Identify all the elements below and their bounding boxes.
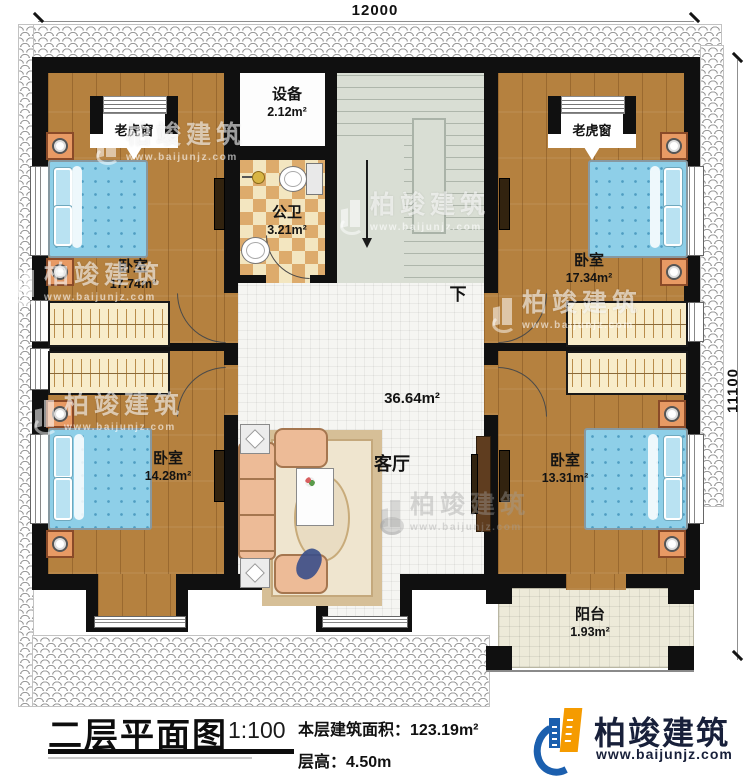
nightstand	[46, 132, 74, 160]
room-label-bathroom: 公卫 3.21m²	[233, 204, 341, 238]
floor-height-value: 4.50m	[346, 754, 391, 771]
left-bay-floor	[98, 574, 176, 618]
bed-sheet	[650, 166, 660, 248]
closet	[566, 351, 688, 395]
brand-logo-icon	[534, 706, 588, 768]
balcony-pillar	[486, 578, 512, 604]
dormer-label: 老虎窗	[90, 120, 178, 139]
room-label-bedroom-tl: 卧室 17.74m²	[73, 258, 193, 292]
balcony-pillar	[668, 578, 694, 604]
room-name: 公卫	[233, 204, 341, 223]
nightstand	[46, 400, 74, 428]
room-area: 14.28m²	[108, 469, 228, 485]
door-opening	[224, 293, 238, 343]
coffee-table	[296, 468, 334, 526]
balcony-pillar	[486, 646, 512, 672]
window	[30, 300, 50, 342]
room-label-bedroom-tr: 卧室 17.34m²	[529, 252, 649, 286]
door-opening	[484, 293, 498, 343]
floor-height-label: 层高：	[298, 754, 346, 771]
pillow	[664, 206, 682, 246]
balcony-door-opening	[566, 574, 626, 590]
closet	[48, 351, 170, 395]
nightstand	[658, 530, 686, 558]
stair-landing-rail	[412, 118, 446, 234]
window	[30, 348, 50, 390]
nightstand	[660, 132, 688, 160]
room-area: 13.31m²	[505, 471, 625, 487]
top-dimension-value: 12000	[335, 2, 415, 19]
room-area: 17.34m²	[529, 271, 649, 287]
pillow	[54, 436, 72, 478]
window	[30, 434, 50, 524]
dormer-window-icon	[561, 96, 625, 114]
toilet-icon	[279, 166, 307, 192]
nightstand	[46, 530, 74, 558]
room-area: 17.74m²	[73, 277, 193, 293]
stairs-down-label: 下	[444, 280, 472, 305]
side-table	[240, 558, 270, 588]
stair-treads	[337, 75, 484, 145]
room-label-equipment: 设备 2.12m²	[233, 86, 341, 120]
room-label-bedroom-bl: 卧室 14.28m²	[108, 450, 228, 484]
closet	[566, 301, 688, 347]
living-room-area: 36.64m²	[362, 390, 462, 407]
pillow	[664, 168, 682, 208]
room-name: 卧室	[108, 450, 228, 469]
dormer-window-icon	[103, 96, 167, 114]
armchair-symbol	[274, 428, 328, 468]
title-underline	[48, 749, 294, 754]
sofa-symbol	[238, 442, 276, 560]
room-name: 卧室	[505, 452, 625, 471]
sink-icon	[241, 237, 270, 264]
room-label-bedroom-br: 卧室 13.31m²	[505, 452, 625, 486]
tv-cabinet	[476, 436, 491, 532]
tv-symbol	[471, 454, 478, 514]
floor-drain-icon	[252, 171, 265, 184]
room-name: 卧室	[529, 252, 649, 271]
bed-sheet	[74, 434, 84, 520]
room-area: 1.93m²	[536, 625, 644, 641]
floor-height-row: 层高：4.50m	[298, 748, 391, 772]
sheet-scale: 1:100	[228, 717, 286, 744]
window	[30, 166, 50, 256]
nightstand	[658, 400, 686, 428]
closet	[48, 301, 170, 347]
balcony-pillar	[668, 646, 694, 672]
bed-sheet	[72, 166, 82, 248]
dormer-label: 老虎窗	[548, 120, 636, 139]
floor-area-value: 123.19m²	[410, 722, 479, 739]
pillow	[54, 206, 72, 246]
pillow	[664, 436, 682, 478]
floor-plan-sheet: 12000 11100	[0, 0, 750, 777]
door-opening	[224, 365, 238, 415]
stair-direction-arrow	[366, 160, 368, 238]
floor-area-row: 本层建筑面积：123.19m²	[298, 716, 479, 740]
stair-arrow-head	[362, 238, 372, 248]
nightstand	[46, 258, 74, 286]
dormer-callout-tail	[126, 147, 142, 160]
room-label-balcony: 阳台 1.93m²	[536, 606, 644, 640]
dormer-callout-tail	[584, 147, 600, 160]
tv-symbol	[499, 178, 510, 230]
toilet-tank-icon	[306, 163, 323, 195]
pillow	[54, 168, 72, 208]
room-name: 阳台	[536, 606, 644, 625]
title-underline-thin	[48, 757, 252, 759]
roof-tiles-bottom	[32, 635, 490, 707]
pillow	[54, 478, 72, 520]
top-dimension-line	[38, 21, 694, 22]
center-bay-window	[322, 616, 408, 628]
room-name: 设备	[233, 86, 341, 105]
door-opening	[484, 365, 498, 415]
right-dimension-value: 11100	[725, 360, 742, 422]
room-area: 2.12m²	[233, 105, 341, 121]
floor-area-label: 本层建筑面积：	[298, 722, 410, 739]
roof-tiles-top	[18, 24, 722, 59]
living-room-name: 客厅	[342, 450, 442, 476]
bed-sheet	[648, 434, 658, 520]
side-table	[240, 424, 270, 454]
room-area: 3.21m²	[233, 223, 341, 239]
left-bay-window	[94, 616, 186, 628]
balcony-railing	[486, 670, 694, 672]
pillow	[664, 478, 682, 520]
tv-symbol	[214, 178, 225, 230]
brand-website: www.baijunjz.com	[596, 746, 733, 762]
room-name: 卧室	[73, 258, 193, 277]
nightstand	[660, 258, 688, 286]
